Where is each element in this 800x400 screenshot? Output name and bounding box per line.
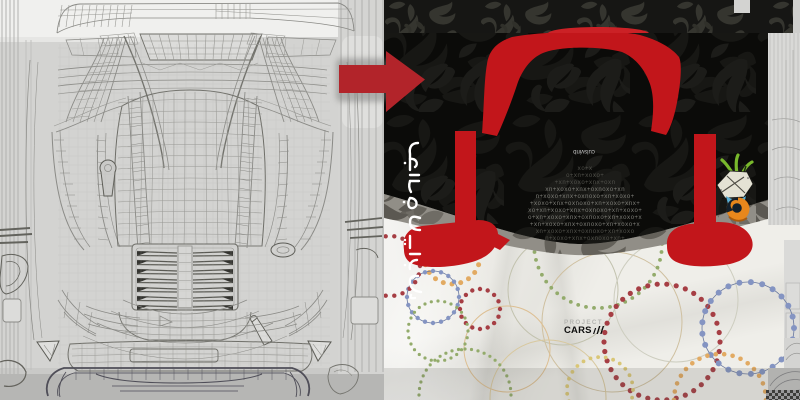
svg-text:o+xn+xoxo+: o+xn+xoxo+	[566, 172, 604, 179]
svg-text:n+xoxo+xnx+oxnoxo+xn+xoxo+: n+xoxo+xnx+oxnoxo+xn+xoxo+	[536, 193, 635, 200]
svg-text:culsvinb: culsvinb	[573, 148, 595, 154]
svg-text:n+xoxo+xnx+oxnoxo+xn+: n+xoxo+xnx+oxnoxo+xn+	[545, 235, 625, 242]
svg-text:+xoxo+xnx+oxnoxo+xn+xoxo+xnx+: +xoxo+xnx+oxnoxo+xn+xoxo+xnx+	[530, 200, 640, 207]
svg-text:xo+x: xo+x	[577, 165, 592, 172]
svg-text:xn+xoxo+xnx+oxnoxo+xn: xn+xoxo+xnx+oxnoxo+xn	[545, 186, 625, 193]
svg-text:xn+xoxo+xnx+oxnoxo+xn+xoxo: xn+xoxo+xnx+oxnoxo+xn+xoxo	[536, 228, 635, 235]
svg-text:+xn+xoxo+xnx+oxn: +xn+xoxo+xnx+oxn	[555, 179, 616, 186]
svg-text:o+xn+xoxo+xnx+oxnoxo+xn+xoxo+x: o+xn+xoxo+xnx+oxnoxo+xn+xoxo+x	[528, 214, 642, 221]
svg-text:xo+xn+xoxo+xnx+oxnoxo+xn+xoxo+: xo+xn+xoxo+xnx+oxnoxo+xn+xoxo+	[528, 207, 642, 214]
svg-text:+xn+xoxo+xnx+oxnoxo+xn+xoxo+x: +xn+xoxo+xnx+oxnoxo+xn+xoxo+x	[530, 221, 640, 228]
